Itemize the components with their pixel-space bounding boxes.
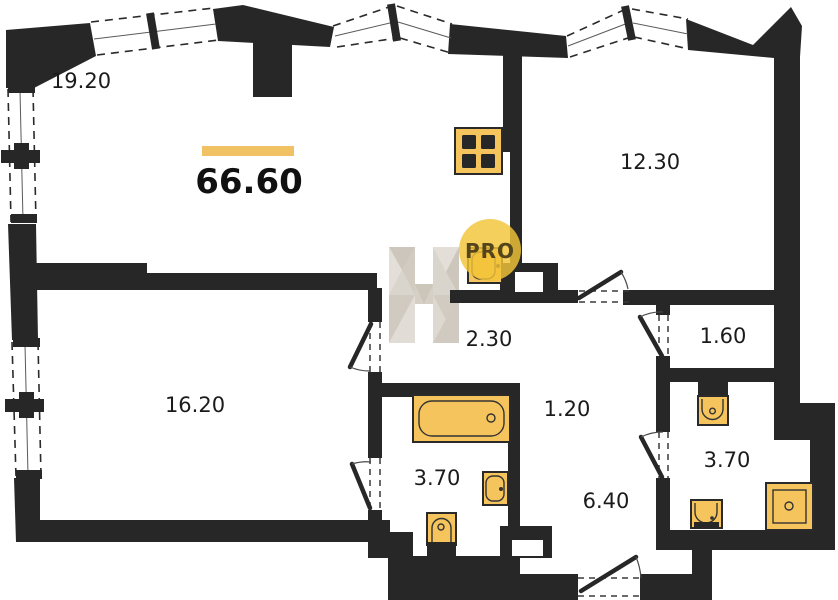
room-label-bedroom2: 16.20: [165, 393, 225, 417]
room-label-corridor: 2.30: [466, 327, 513, 351]
room-label-bedroom: 12.30: [620, 150, 680, 174]
shower-icon: [766, 483, 813, 530]
washbasin-2-icon: [691, 500, 722, 529]
total-area-label: 66.60: [195, 162, 303, 202]
door-bathroom2: [641, 432, 668, 478]
total-area: 66.60: [195, 146, 303, 202]
duct-niche-kitchen: [515, 272, 543, 292]
bathtub-icon: [413, 395, 510, 442]
window-left-lower: [5, 338, 44, 479]
kitchen-stove-icon: [455, 128, 502, 174]
door-ensuite-bathroom: [352, 458, 380, 510]
duct-niche-bathroom: [512, 540, 543, 556]
window-top-3: [397, 6, 452, 53]
room-label-corridor2: 1.20: [544, 397, 591, 421]
room-label-storage: 1.60: [700, 324, 747, 348]
door-bedroom: [579, 272, 629, 302]
window-top-1: [91, 8, 219, 55]
room-label-hallway: 6.40: [583, 489, 630, 513]
window-top-4: [567, 6, 632, 57]
door-entry: [578, 557, 641, 596]
window-top-5: [632, 9, 689, 49]
room-label-living: 19.20: [51, 69, 111, 93]
floor-plan-page: PRO 19.20 12.30 16.20 2.30 1.20 3.70 6.4…: [0, 0, 838, 600]
window-left-upper: [1, 84, 40, 223]
door-storage: [640, 312, 668, 356]
pro-badge-text: PRO: [465, 239, 515, 263]
door-bedroom2: [350, 322, 380, 372]
toilet-icon: [427, 513, 456, 558]
room-label-bathroom: 3.70: [414, 466, 461, 490]
floor-plan: PRO 19.20 12.30 16.20 2.30 1.20 3.70 6.4…: [0, 0, 838, 600]
toilet-2-icon: [698, 380, 728, 425]
room-label-bathroom2: 3.70: [704, 448, 751, 472]
washbasin-icon: [483, 472, 508, 505]
pro-badge: PRO: [459, 219, 521, 281]
watermark-logo: [389, 247, 459, 343]
total-area-bar: [202, 146, 294, 156]
window-top-2: [333, 4, 397, 47]
